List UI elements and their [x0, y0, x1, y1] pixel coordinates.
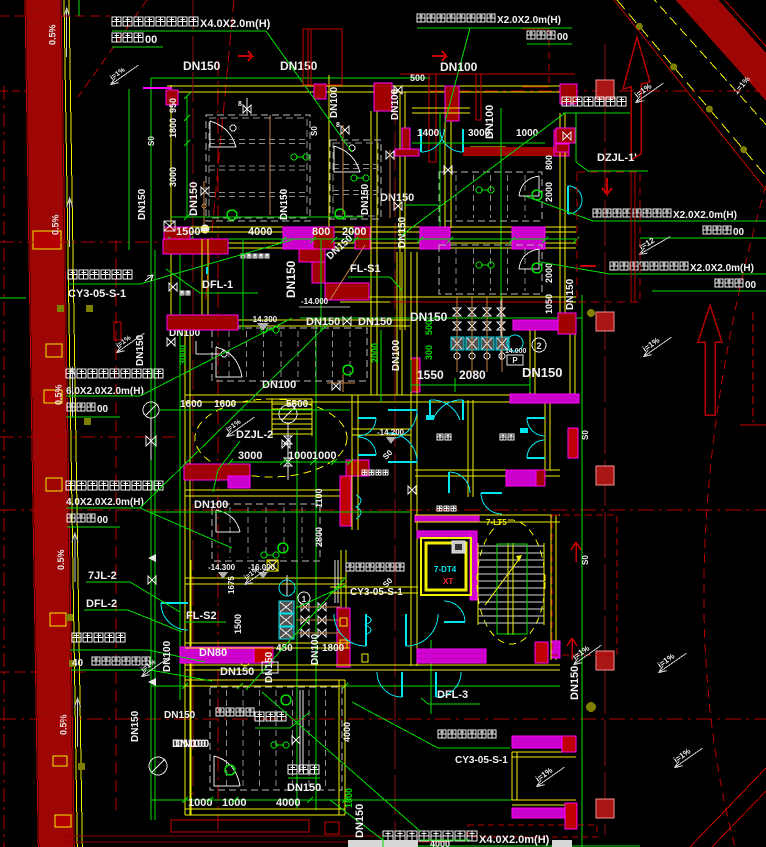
svg-text:4000: 4000	[342, 722, 352, 742]
svg-text:DN150: DN150	[380, 192, 414, 204]
svg-text:1000: 1000	[312, 450, 336, 462]
svg-text:DZJL-1': DZJL-1'	[597, 152, 637, 164]
svg-text:DN80: DN80	[199, 647, 227, 659]
svg-text:DFL-1: DFL-1	[202, 279, 233, 291]
svg-text:1800: 1800	[168, 118, 178, 138]
svg-text:DN150: DN150	[183, 59, 221, 73]
svg-text:00: 00	[97, 404, 109, 415]
svg-text:DN100: DN100	[390, 88, 401, 120]
svg-text:DN150: DN150	[279, 188, 290, 220]
svg-text:DN150: DN150	[306, 316, 340, 328]
svg-text:-14.300: -14.300	[250, 315, 278, 324]
svg-text:X4.0X2.0m(H): X4.0X2.0m(H)	[200, 18, 271, 30]
svg-text:2: 2	[536, 341, 541, 351]
svg-text:DN100: DN100	[329, 86, 340, 118]
svg-text:DN100: DN100	[262, 379, 296, 391]
svg-text:DN150: DN150	[522, 365, 562, 380]
svg-text:S0: S0	[581, 430, 590, 440]
svg-text:-14.000: -14.000	[301, 297, 329, 306]
svg-text:X2.0X2.0m(H): X2.0X2.0m(H)	[673, 210, 737, 221]
svg-text:4.0X2.0X2.0m(H): 4.0X2.0X2.0m(H)	[66, 497, 144, 508]
svg-text:2000: 2000	[544, 263, 554, 283]
svg-text:800: 800	[312, 226, 330, 238]
svg-text:DN100: DN100	[172, 738, 206, 750]
svg-text:00: 00	[145, 34, 157, 46]
svg-text:1600: 1600	[214, 399, 237, 410]
svg-text:4000: 4000	[248, 226, 272, 238]
svg-text:3000: 3000	[238, 450, 262, 462]
svg-text:2000: 2000	[370, 343, 380, 363]
svg-text:CY3-05-S-1: CY3-05-S-1	[455, 755, 508, 766]
svg-text:0.5%: 0.5%	[56, 549, 66, 570]
svg-text:1000: 1000	[222, 797, 246, 809]
svg-text:1800: 1800	[344, 788, 354, 808]
svg-text:4000: 4000	[276, 797, 300, 809]
svg-text:1500: 1500	[233, 614, 243, 634]
svg-text:DZJL-2: DZJL-2	[236, 429, 273, 441]
svg-text:DN100: DN100	[440, 60, 478, 74]
svg-text:8: 8	[238, 101, 242, 108]
svg-text:X4.0X2.0m(H): X4.0X2.0m(H)	[479, 834, 550, 846]
svg-text:480: 480	[276, 643, 293, 654]
svg-text:CY3-05-S-1: CY3-05-S-1	[350, 587, 403, 598]
svg-text:DN150: DN150	[188, 182, 200, 216]
svg-text:800: 800	[544, 155, 554, 170]
svg-text:500: 500	[424, 320, 434, 335]
svg-text:DN150: DN150	[565, 278, 576, 310]
svg-text:1100: 1100	[314, 488, 324, 508]
svg-text:2800: 2800	[314, 527, 324, 547]
svg-text:1675: 1675	[227, 576, 236, 594]
svg-text:DN100: DN100	[391, 339, 402, 371]
svg-text:1800: 1800	[322, 643, 345, 654]
svg-text:DN150: DN150	[284, 260, 298, 298]
svg-text:DN100: DN100	[484, 105, 496, 139]
svg-text:0.5%: 0.5%	[59, 714, 69, 735]
svg-text:1050: 1050	[544, 294, 554, 314]
svg-text:S0: S0	[581, 555, 590, 565]
svg-text:1: 1	[302, 595, 307, 604]
svg-text:0.5%: 0.5%	[51, 214, 61, 235]
svg-text:500: 500	[410, 73, 425, 83]
svg-text:DFL-3: DFL-3	[437, 689, 468, 701]
svg-text:7JL-2: 7JL-2	[88, 570, 117, 582]
svg-text:DN100: DN100	[194, 499, 228, 511]
svg-text:DN150: DN150	[360, 183, 371, 215]
svg-text:0.5%: 0.5%	[48, 24, 58, 45]
svg-text:DN150: DN150	[358, 316, 392, 328]
svg-text:X2.0X2.0m(H): X2.0X2.0m(H)	[497, 15, 561, 26]
svg-text:DN150: DN150	[264, 651, 275, 683]
svg-text:7-DT4: 7-DT4	[434, 565, 457, 574]
svg-text:1000: 1000	[188, 797, 212, 809]
svg-text:DN150: DN150	[220, 666, 254, 678]
svg-text:0.5%: 0.5%	[53, 384, 63, 405]
svg-text:00: 00	[733, 227, 745, 238]
svg-text:XT: XT	[443, 577, 453, 586]
svg-text:DN100: DN100	[310, 633, 321, 665]
svg-text:950: 950	[168, 98, 178, 113]
svg-text:DN150: DN150	[280, 59, 318, 73]
svg-text:40: 40	[72, 658, 84, 669]
svg-text:2080: 2080	[459, 368, 486, 382]
svg-text:P: P	[512, 356, 518, 365]
svg-text:CY3-05-S-1: CY3-05-S-1	[68, 288, 126, 300]
svg-text:S0: S0	[147, 136, 156, 146]
svg-text:2000: 2000	[342, 226, 366, 238]
svg-text:3000: 3000	[178, 345, 188, 365]
svg-text:1000: 1000	[288, 450, 312, 462]
svg-text:7-LT5: 7-LT5	[486, 518, 507, 527]
svg-text:00: 00	[557, 32, 569, 43]
svg-text:DN100: DN100	[162, 640, 173, 672]
svg-text:300: 300	[424, 345, 434, 360]
svg-text:1500: 1500	[176, 226, 200, 238]
svg-text:X2.0X2.0m(H): X2.0X2.0m(H)	[690, 263, 754, 274]
svg-text:3000: 3000	[168, 167, 178, 187]
svg-text:DN150: DN150	[130, 710, 141, 742]
svg-text:DN150: DN150	[287, 782, 321, 794]
svg-text:1550: 1550	[417, 368, 444, 382]
svg-text:2000: 2000	[544, 182, 554, 202]
svg-text:FL-S1: FL-S1	[350, 263, 381, 275]
svg-text:5600: 5600	[286, 399, 309, 410]
svg-text:1600: 1600	[180, 399, 203, 410]
svg-text:00: 00	[745, 280, 757, 291]
svg-text:-14.200: -14.200	[377, 428, 405, 437]
svg-text:DN150: DN150	[569, 666, 581, 700]
svg-text:14.000: 14.000	[505, 348, 527, 355]
svg-text:00: 00	[97, 515, 109, 526]
svg-text:DN150: DN150	[164, 710, 196, 721]
svg-text:DN150: DN150	[137, 188, 148, 220]
svg-text:FL-S2: FL-S2	[186, 610, 217, 622]
svg-text:S0: S0	[310, 126, 319, 136]
svg-text:-14.300: -14.300	[208, 563, 236, 572]
svg-text:8: 8	[336, 122, 340, 129]
svg-text:6.0X2.0X2.0m(H): 6.0X2.0X2.0m(H)	[66, 386, 144, 397]
svg-text:1400: 1400	[417, 128, 440, 139]
svg-text:1000: 1000	[516, 128, 539, 139]
svg-text:DFL-2: DFL-2	[86, 598, 117, 610]
svg-text:DN150: DN150	[354, 804, 366, 838]
